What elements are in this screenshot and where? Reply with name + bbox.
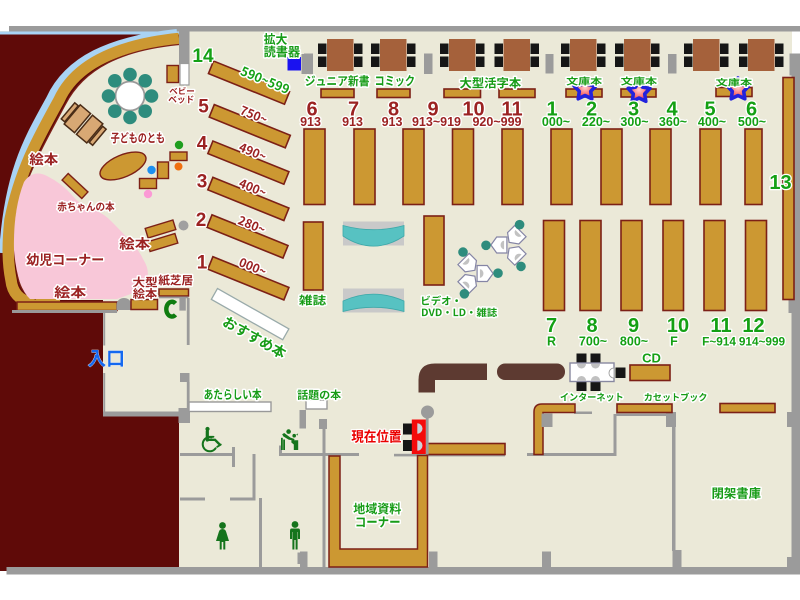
svg-text:913: 913 — [382, 115, 403, 129]
svg-text:3: 3 — [197, 172, 208, 193]
svg-text:13: 13 — [769, 172, 791, 194]
svg-text:14: 14 — [192, 46, 214, 67]
svg-text:913: 913 — [300, 115, 321, 129]
svg-text:000~: 000~ — [542, 115, 570, 129]
svg-text:5: 5 — [198, 97, 209, 118]
svg-text:920~999: 920~999 — [472, 115, 521, 129]
svg-text:220~: 220~ — [582, 115, 610, 129]
svg-text:500~: 500~ — [738, 115, 766, 129]
svg-text:914~999: 914~999 — [739, 335, 786, 349]
svg-text:300~: 300~ — [620, 115, 648, 129]
svg-text:913~919: 913~919 — [412, 115, 461, 129]
svg-text:F~914: F~914 — [702, 335, 736, 349]
svg-text:4: 4 — [197, 134, 208, 155]
svg-text:1: 1 — [197, 253, 208, 274]
svg-text:F: F — [670, 335, 678, 349]
svg-text:800~: 800~ — [620, 335, 648, 349]
svg-text:360~: 360~ — [659, 115, 687, 129]
svg-text:CD: CD — [642, 351, 661, 366]
svg-text:913: 913 — [342, 115, 363, 129]
svg-text:400~: 400~ — [698, 115, 726, 129]
svg-text:R: R — [547, 335, 556, 349]
svg-text:2: 2 — [196, 210, 207, 231]
svg-text:700~: 700~ — [579, 335, 607, 349]
